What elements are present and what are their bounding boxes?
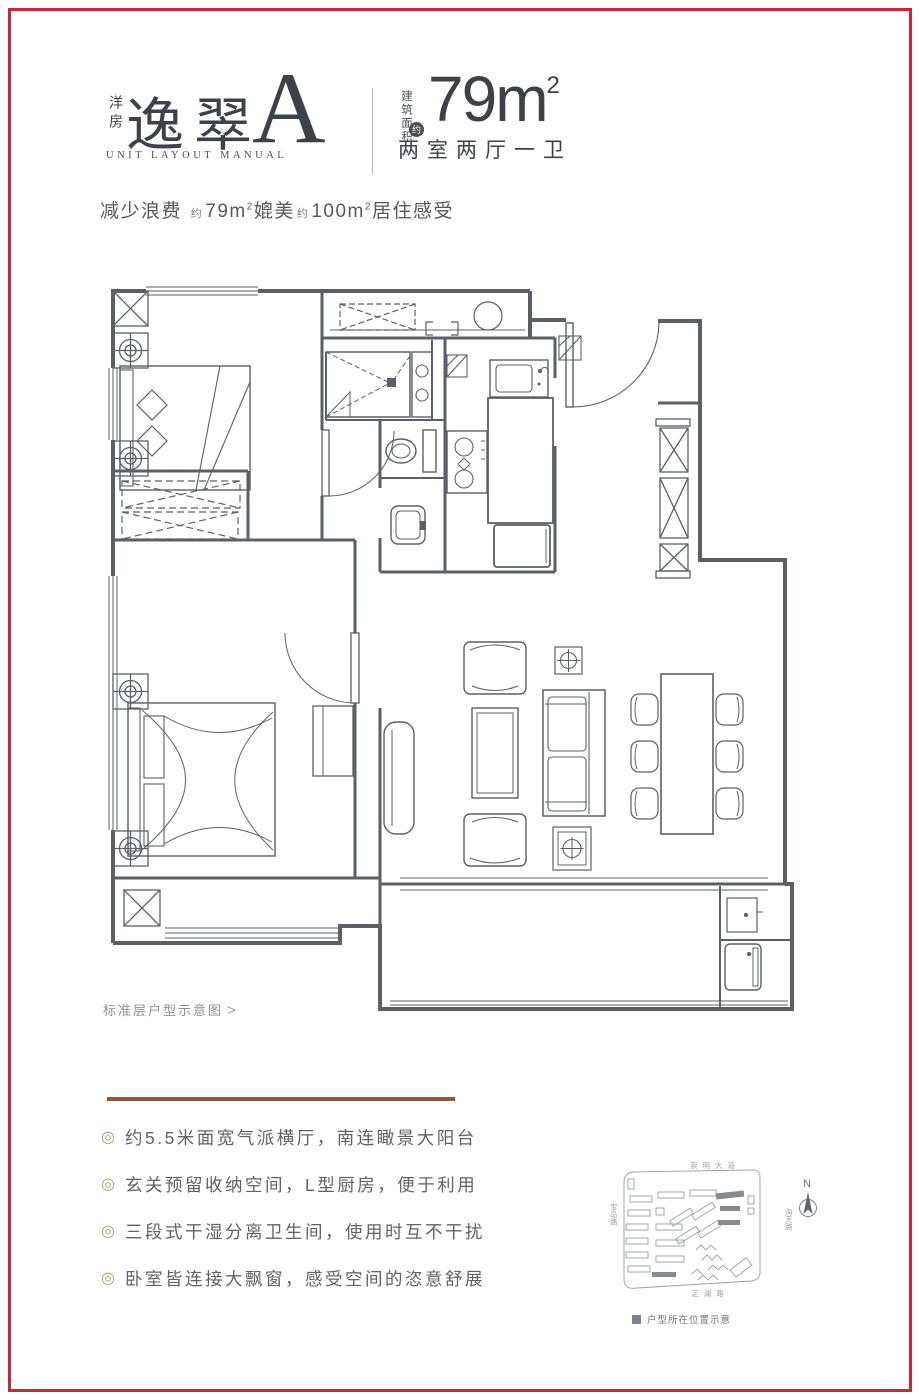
layout-spec: 两室两厅一卫 bbox=[398, 134, 572, 164]
marker-1 bbox=[113, 333, 148, 368]
balcony-fixtures bbox=[725, 898, 763, 990]
kitchen-sink bbox=[490, 360, 548, 397]
tv-console bbox=[384, 722, 414, 834]
floor-plan bbox=[100, 278, 800, 1018]
sofa bbox=[543, 690, 605, 816]
brochure-page: 洋房 逸翠 A UNIT LAYOUT MANUAL 建筑面积 约 79m2 两… bbox=[0, 0, 920, 1400]
tagline-sup-1: 2 bbox=[247, 202, 254, 213]
bedroom-2-dresser bbox=[313, 706, 353, 776]
compass-icon bbox=[795, 1190, 821, 1220]
tagline-prefix: 减少浪费 bbox=[100, 201, 182, 222]
ring-bullet-icon: ◎ bbox=[101, 1173, 115, 1197]
balcony-sink bbox=[727, 898, 763, 932]
product-type-label: 洋房 bbox=[106, 95, 126, 133]
feature-text-2: 玄关预留收纳空间，L型厨房，便于利用 bbox=[125, 1173, 477, 1197]
feature-list: ◎ 约5.5米面宽气派横厅，南连瞰景大阳台 ◎ 玄关预留收纳空间，L型厨房，便于… bbox=[101, 1126, 501, 1314]
area-value: 79m2 bbox=[428, 62, 560, 136]
ring-bullet-icon: ◎ bbox=[101, 1220, 115, 1244]
tagline-value-1: 79m bbox=[205, 201, 246, 222]
header-divider bbox=[372, 88, 373, 174]
dining-table bbox=[661, 674, 713, 834]
manual-subtitle: UNIT LAYOUT MANUAL bbox=[106, 150, 287, 161]
unit-letter: A bbox=[252, 58, 326, 160]
side-table-top bbox=[555, 647, 582, 674]
ring-bullet-icon: ◎ bbox=[101, 1126, 115, 1150]
shaft-hatch bbox=[656, 419, 690, 578]
list-item: ◎ 玄关预留收纳空间，L型厨房，便于利用 bbox=[101, 1173, 501, 1197]
tagline-mid: 媲美 bbox=[254, 201, 295, 222]
inner-walls bbox=[113, 291, 792, 1009]
entry-cabinet bbox=[559, 336, 581, 360]
dining-chairs bbox=[631, 694, 743, 819]
stove bbox=[447, 431, 487, 493]
windows bbox=[108, 286, 788, 1005]
tagline-suffix: 居住感受 bbox=[372, 201, 454, 222]
washing-machine bbox=[725, 944, 761, 990]
tagline-approx-2: 约 bbox=[297, 208, 310, 220]
outer-walls bbox=[113, 291, 792, 1009]
feature-text-3: 三段式干湿分离卫生间，使用时互不干扰 bbox=[125, 1220, 485, 1244]
area-number: 79 bbox=[428, 63, 495, 135]
kitchen-counter bbox=[488, 398, 553, 523]
hand-basin bbox=[391, 506, 426, 544]
kitchen bbox=[447, 355, 553, 567]
bedroom-2-bed bbox=[128, 703, 353, 856]
fridge bbox=[494, 525, 550, 567]
plan-caption-text: 标准层户型示意图 bbox=[103, 1003, 223, 1018]
armchair-bottom bbox=[464, 814, 526, 866]
ring-bullet-icon: ◎ bbox=[101, 1267, 115, 1291]
bedroom-doors bbox=[285, 430, 394, 703]
tagline-sup-2: 2 bbox=[365, 202, 372, 213]
legend-text: 户型所在位置示意 bbox=[647, 1312, 731, 1326]
side-table-bottom bbox=[553, 827, 591, 870]
compass-label: N bbox=[803, 1178, 811, 1190]
area-sup: 2 bbox=[547, 72, 560, 99]
section-divider bbox=[107, 1097, 455, 1101]
feature-text-4: 卧室皆连接大飘窗，感受空间的恣意舒展 bbox=[125, 1267, 485, 1291]
coffee-table bbox=[472, 708, 518, 798]
sofa-set bbox=[464, 642, 605, 870]
marker-4 bbox=[113, 831, 148, 866]
site-map bbox=[612, 1166, 782, 1306]
legend-square-icon bbox=[632, 1315, 641, 1324]
dining-set bbox=[631, 674, 743, 834]
marker-3 bbox=[113, 674, 148, 709]
plan-caption: 标准层户型示意图> bbox=[103, 1000, 238, 1019]
tagline-value-2: 100m bbox=[311, 201, 365, 222]
list-item: ◎ 三段式干湿分离卫生间，使用时互不干扰 bbox=[101, 1220, 501, 1244]
list-item: ◎ 卧室皆连接大飘窗，感受空间的恣意舒展 bbox=[101, 1267, 501, 1291]
armchair-top bbox=[464, 642, 526, 694]
road-label-right: 海天路 bbox=[781, 1208, 795, 1231]
chevron-right-icon: > bbox=[227, 1002, 238, 1019]
feature-text-1: 约5.5米面宽气派横厅，南连瞰景大阳台 bbox=[125, 1126, 477, 1150]
area-unit: m bbox=[495, 63, 546, 135]
tagline: 减少浪费 约79m2媲美约100m2居住感受 bbox=[100, 196, 454, 223]
tagline-approx-1: 约 bbox=[191, 208, 204, 220]
map-legend: 户型所在位置示意 bbox=[632, 1312, 731, 1326]
list-item: ◎ 约5.5米面宽气派横厅，南连瞰景大阳台 bbox=[101, 1126, 501, 1150]
